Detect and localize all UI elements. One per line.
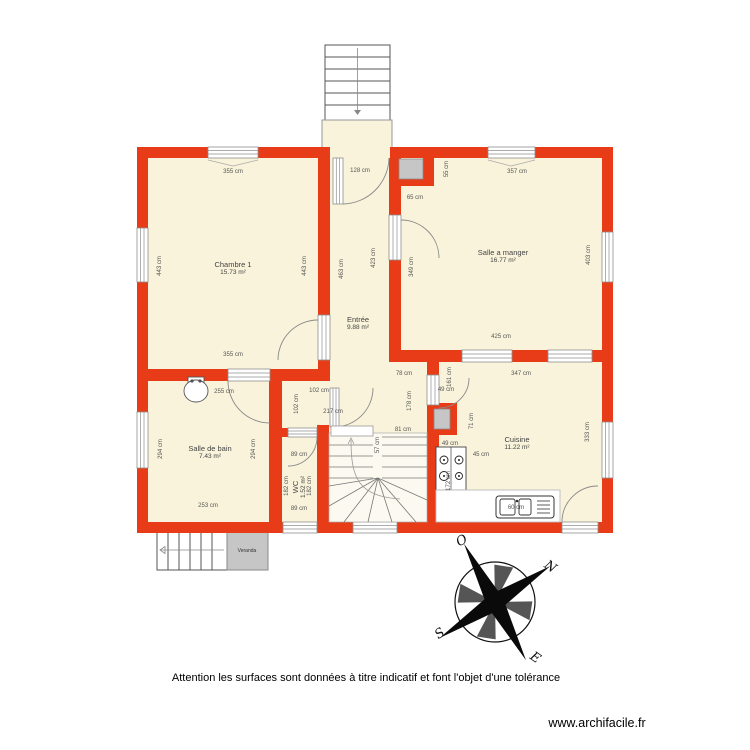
exterior-stairs-top [325,45,390,120]
veranda [227,530,268,570]
interior-staircase [329,426,427,522]
stairs-landing [331,426,373,436]
compass-rose [435,540,556,665]
window [137,412,148,468]
kitchen-stove [436,447,466,490]
window [353,522,397,533]
bathroom-sink [184,377,208,402]
window [602,422,613,478]
window [602,232,613,282]
floorplan-page: Attention les surfaces sont données à ti… [0,0,750,750]
window [283,522,317,533]
exterior-stairs-left [157,530,227,570]
floorplan-drawing [0,0,750,750]
window [462,350,512,362]
window [137,228,148,282]
kitchen-counter [436,490,560,522]
kitchen-sink [496,496,554,518]
window [548,350,592,362]
